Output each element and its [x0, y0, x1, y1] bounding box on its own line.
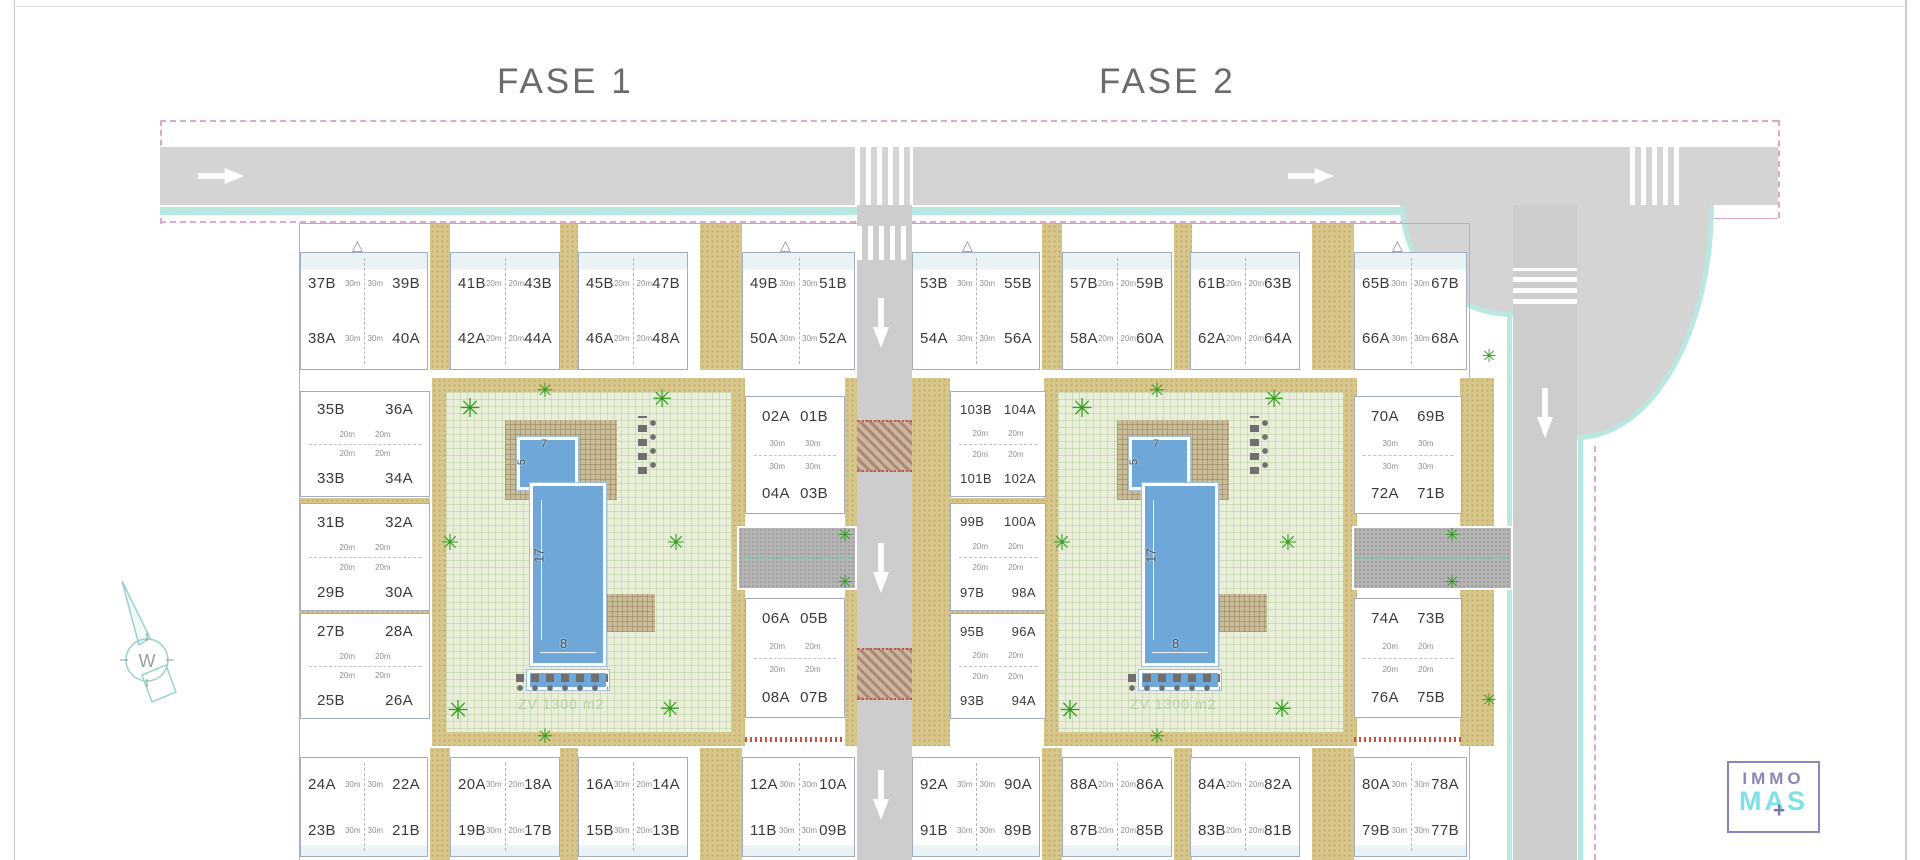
- unit-cluster: 53B30m30m55B 54A30m30m56A: [912, 252, 1040, 370]
- boundary-line: [160, 120, 1778, 122]
- walkway: [1042, 224, 1062, 370]
- sun-loungers: [516, 674, 608, 682]
- pool-dim-label: 5: [1128, 459, 1140, 465]
- crosswalk: [1630, 147, 1680, 205]
- unit-label: 58A: [1070, 330, 1098, 347]
- unit-cluster: 88A20m20m86A 87B20m20m85B: [1062, 757, 1172, 857]
- unit-label: 95B: [960, 624, 984, 639]
- unit-label: 62A: [1198, 330, 1226, 347]
- palm-tree-icon: [1272, 698, 1292, 722]
- unit-cluster: 24A30m30m22A 23B30m30m21B: [300, 757, 428, 857]
- palm-tree-icon: [447, 697, 469, 723]
- walkway: [430, 748, 450, 860]
- palm-tree-icon: [1071, 395, 1093, 421]
- unit-label: 56A: [1004, 330, 1032, 347]
- unit-label: 15B: [586, 822, 614, 839]
- unit-label: 85B: [1136, 822, 1164, 839]
- phase2-title: FASE 2: [1099, 62, 1236, 102]
- unit-label: 21B: [392, 822, 420, 839]
- palm-tree-icon: [837, 526, 852, 544]
- unit-label: 75B: [1417, 689, 1445, 706]
- unit-label: 49B: [750, 275, 778, 292]
- unit-cluster: 95B96A 20m20m 20m20m 93B94A: [950, 613, 1046, 719]
- unit-label: 08A: [762, 689, 790, 706]
- unit-label: 26A: [385, 692, 413, 709]
- sidewalk-edge: [1578, 438, 1583, 860]
- unit-label: 30A: [385, 584, 413, 601]
- unit-label: 36A: [385, 401, 413, 418]
- dimension-line: [1152, 652, 1208, 653]
- dimension-line: [1153, 500, 1154, 640]
- entrance-marker-icon: [1392, 238, 1403, 252]
- unit-label: 14A: [652, 776, 680, 793]
- entrance-marker-icon: [352, 238, 363, 252]
- unit-cluster: 41B20m20m43B 42A20m20m44A: [450, 252, 560, 370]
- palm-tree-icon: [1481, 347, 1496, 365]
- palm-tree-icon: [652, 388, 672, 412]
- compass: W: [92, 575, 212, 715]
- palm-tree-icon: [667, 532, 685, 554]
- sun-loungers: [649, 416, 657, 474]
- unit-label: 03B: [800, 485, 828, 502]
- unit-label: 59B: [1136, 275, 1164, 292]
- unit-label: 33B: [317, 470, 345, 487]
- unit-label: 93B: [960, 693, 984, 708]
- unit-label: 89B: [1004, 822, 1032, 839]
- unit-label: 80A: [1362, 776, 1390, 793]
- unit-label: 79B: [1362, 822, 1390, 839]
- unit-label: 07B: [800, 689, 828, 706]
- walkway: [912, 378, 950, 746]
- unit-label: 17B: [524, 822, 552, 839]
- speed-hump: [857, 420, 912, 472]
- unit-cluster: 02A01B 30m30m 30m30m 04A03B: [745, 396, 845, 514]
- crosswalk: [857, 226, 912, 260]
- unit-label: 54A: [920, 330, 948, 347]
- unit-label: 66A: [1362, 330, 1390, 347]
- unit-label: 46A: [586, 330, 614, 347]
- unit-cluster: 27B28A 20m20m 20m20m 25B26A: [300, 613, 430, 719]
- unit-label: 20A: [458, 776, 486, 793]
- unit-label: 27B: [317, 623, 345, 640]
- unit-label: 78A: [1431, 776, 1459, 793]
- green-zone-label: ZV 1300 m2: [518, 696, 604, 712]
- unit-cluster: 16A30m20m14A 15B30m20m13B: [578, 757, 688, 857]
- top-road: [160, 147, 1778, 205]
- unit-label: 41B: [458, 275, 486, 292]
- unit-cluster: 103B104A 20m20m 20m20m 101B102A: [950, 391, 1046, 497]
- walkway: [560, 748, 578, 860]
- unit-label: 76A: [1371, 689, 1399, 706]
- unit-label: 91B: [920, 822, 948, 839]
- junction-curve: [1577, 205, 1714, 440]
- pergola-deck: [607, 594, 655, 632]
- unit-label: 16A: [586, 776, 614, 793]
- palm-tree-icon: [660, 698, 680, 722]
- unit-label: 101B: [960, 471, 992, 486]
- unit-label: 51B: [819, 275, 847, 292]
- unit-label: 29B: [317, 584, 345, 601]
- sun-loungers: [1128, 684, 1220, 692]
- unit-label: 72A: [1371, 485, 1399, 502]
- palm-tree-icon: [1149, 381, 1166, 401]
- unit-label: 19B: [458, 822, 486, 839]
- unit-label: 24A: [308, 776, 336, 793]
- unit-label: 44A: [524, 330, 552, 347]
- logo-line1: IMMO: [1729, 770, 1818, 787]
- unit-label: 09B: [819, 822, 847, 839]
- frame-top-line: [14, 6, 1906, 7]
- frame-right-line: [1905, 0, 1907, 860]
- sidewalk-edge: [160, 207, 1502, 215]
- unit-label: 63B: [1264, 275, 1292, 292]
- unit-label: 10A: [819, 776, 847, 793]
- sun-loungers: [1128, 674, 1220, 682]
- palm-tree-icon: [441, 532, 459, 554]
- walkway-stairs: [700, 748, 742, 860]
- unit-label: 98A: [1012, 585, 1036, 600]
- crosswalk: [855, 147, 913, 205]
- unit-cluster: 92A30m30m90A 91B30m30m89B: [912, 757, 1040, 857]
- unit-label: 68A: [1431, 330, 1459, 347]
- walkway: [1042, 748, 1062, 860]
- unit-label: 87B: [1070, 822, 1098, 839]
- red-marking: [745, 737, 845, 742]
- sun-loungers: [516, 684, 608, 692]
- unit-label: 82A: [1264, 776, 1292, 793]
- unit-label: 37B: [308, 275, 336, 292]
- unit-label: 61B: [1198, 275, 1226, 292]
- palm-tree-icon: [1053, 532, 1071, 554]
- pool-dim-label: 7: [541, 438, 547, 450]
- unit-label: 18A: [524, 776, 552, 793]
- unit-label: 57B: [1070, 275, 1098, 292]
- unit-label: 74A: [1371, 610, 1399, 627]
- unit-label: 83B: [1198, 822, 1226, 839]
- unit-label: 70A: [1371, 408, 1399, 425]
- unit-label: 96A: [1012, 624, 1036, 639]
- unit-cluster: 61B20m20m63B 62A20m20m64A: [1190, 252, 1300, 370]
- unit-cluster: 70A69B 30m30m 30m30m 72A71B: [1354, 396, 1462, 514]
- unit-label: 100A: [1004, 514, 1036, 529]
- unit-label: 50A: [750, 330, 778, 347]
- unit-label: 64A: [1264, 330, 1292, 347]
- phase1-title: FASE 1: [497, 62, 634, 102]
- unit-label: 73B: [1417, 610, 1445, 627]
- unit-label: 47B: [652, 275, 680, 292]
- unit-label: 32A: [385, 514, 413, 531]
- palm-tree-icon: [1444, 526, 1459, 544]
- unit-label: 48A: [652, 330, 680, 347]
- unit-label: 94A: [1012, 693, 1036, 708]
- unit-label: 60A: [1136, 330, 1164, 347]
- unit-label: 52A: [819, 330, 847, 347]
- unit-label: 25B: [317, 692, 345, 709]
- unit-label: 65B: [1362, 275, 1390, 292]
- pool-dim-label: 7: [1153, 438, 1159, 450]
- unit-label: 04A: [762, 485, 790, 502]
- unit-label: 77B: [1431, 822, 1459, 839]
- unit-label: 81B: [1264, 822, 1292, 839]
- pool-dim-label: 17: [1144, 548, 1159, 562]
- unit-cluster: 84A20m20m82A 83B20m20m81B: [1190, 757, 1300, 857]
- unit-label: 23B: [308, 822, 336, 839]
- entrance-marker-icon: [962, 238, 973, 252]
- central-road: [857, 205, 912, 860]
- unit-label: 38A: [308, 330, 336, 347]
- unit-label: 28A: [385, 623, 413, 640]
- unit-cluster: 80A30m30m78A 79B30m30m77B: [1354, 757, 1467, 857]
- palm-tree-icon: [1059, 697, 1081, 723]
- palm-tree-icon: [1279, 532, 1297, 554]
- unit-label: 06A: [762, 610, 790, 627]
- immo-mas-logo: IMMO MAS +: [1727, 761, 1820, 833]
- palm-tree-icon: [537, 727, 554, 747]
- unit-label: 43B: [524, 275, 552, 292]
- unit-cluster: 57B20m20m59B 58A20m20m60A: [1062, 252, 1172, 370]
- unit-label: 69B: [1417, 408, 1445, 425]
- unit-cluster: 12A30m30m10A 11B30m30m09B: [742, 757, 855, 857]
- unit-cluster: 65B30m30m67B 66A30m30m68A: [1354, 252, 1467, 370]
- unit-label: 102A: [1004, 471, 1036, 486]
- crosswalk: [1513, 268, 1577, 304]
- unit-label: 12A: [750, 776, 778, 793]
- palm-tree-icon: [1149, 727, 1166, 747]
- unit-label: 99B: [960, 514, 984, 529]
- unit-label: 45B: [586, 275, 614, 292]
- walkway-stairs: [1312, 748, 1354, 860]
- logo-plus-icon: +: [1773, 799, 1785, 823]
- unit-cluster: 31B32A 20m20m 20m20m 29B30A: [300, 503, 430, 611]
- unit-label: 39B: [392, 275, 420, 292]
- palm-tree-icon: [1264, 388, 1284, 412]
- unit-cluster: 06A05B 20m20m 20m20m 08A07B: [745, 598, 845, 718]
- sun-loungers: [638, 416, 647, 474]
- dimension-line: [541, 500, 542, 640]
- unit-label: 86A: [1136, 776, 1164, 793]
- unit-label: 88A: [1070, 776, 1098, 793]
- unit-cluster: 74A73B 20m20m 20m20m 76A75B: [1354, 598, 1462, 718]
- compass-letter: W: [139, 651, 156, 671]
- speed-hump: [857, 648, 912, 700]
- unit-label: 02A: [762, 408, 790, 425]
- unit-label: 31B: [317, 514, 345, 531]
- unit-label: 34A: [385, 470, 413, 487]
- entrance-marker-icon: [780, 238, 791, 252]
- walkway-stairs: [1312, 224, 1354, 370]
- sun-loungers: [1261, 416, 1269, 474]
- pool-dim-label: 8: [1172, 636, 1179, 651]
- walkway: [430, 224, 450, 370]
- boundary-line: [1594, 446, 1596, 860]
- palm-tree-icon: [1481, 691, 1496, 709]
- palm-tree-icon: [459, 395, 481, 421]
- sun-loungers: [1250, 416, 1259, 474]
- unit-label: 11B: [750, 822, 777, 839]
- pool-dim-label: 5: [516, 459, 528, 465]
- boundary-line: [1778, 120, 1780, 218]
- unit-label: 92A: [920, 776, 948, 793]
- unit-label: 71B: [1417, 485, 1445, 502]
- palm-tree-icon: [837, 573, 852, 591]
- unit-label: 35B: [317, 401, 345, 418]
- walkway-stairs: [700, 224, 742, 370]
- unit-label: 53B: [920, 275, 948, 292]
- unit-label: 55B: [1004, 275, 1032, 292]
- unit-label: 13B: [652, 822, 680, 839]
- unit-label: 40A: [392, 330, 420, 347]
- unit-label: 84A: [1198, 776, 1226, 793]
- pool-dim-label: 8: [560, 636, 567, 651]
- unit-label: 97B: [960, 585, 984, 600]
- frame-left-line: [14, 0, 15, 860]
- unit-cluster: 35B36A 20m20m 20m20m 33B34A: [300, 391, 430, 497]
- compass-needle: [122, 581, 150, 645]
- palm-tree-icon: [1444, 573, 1459, 591]
- red-marking: [1354, 737, 1462, 742]
- unit-label: 01B: [800, 408, 828, 425]
- unit-label: 22A: [392, 776, 420, 793]
- unit-cluster: 45B20m20m47B 46A20m20m48A: [578, 252, 688, 370]
- unit-label: 104A: [1004, 402, 1036, 417]
- unit-cluster: 20A30m20m18A 19B30m20m17B: [450, 757, 560, 857]
- block-outline: [300, 223, 857, 224]
- walkway: [560, 224, 578, 370]
- unit-label: 90A: [1004, 776, 1032, 793]
- unit-label: 103B: [960, 402, 992, 417]
- dimension-line: [540, 652, 596, 653]
- palm-tree-icon: [537, 381, 554, 401]
- site-plan: FASE 1 FASE 2 7 5 17: [0, 0, 1920, 860]
- pool-dim-label: 17: [532, 548, 547, 562]
- entry-passage: [1352, 526, 1513, 590]
- pergola-deck: [1219, 594, 1267, 632]
- unit-label: 42A: [458, 330, 486, 347]
- green-zone-label: ZV 1300 m2: [1130, 696, 1216, 712]
- unit-cluster: 49B30m30m51B 50A30m30m52A: [742, 252, 855, 370]
- unit-label: 05B: [800, 610, 828, 627]
- unit-cluster: 37B30m30m39B 38A30m30m40A: [300, 252, 428, 370]
- unit-cluster: 99B100A 20m20m 20m20m 97B98A: [950, 503, 1046, 611]
- unit-label: 67B: [1431, 275, 1459, 292]
